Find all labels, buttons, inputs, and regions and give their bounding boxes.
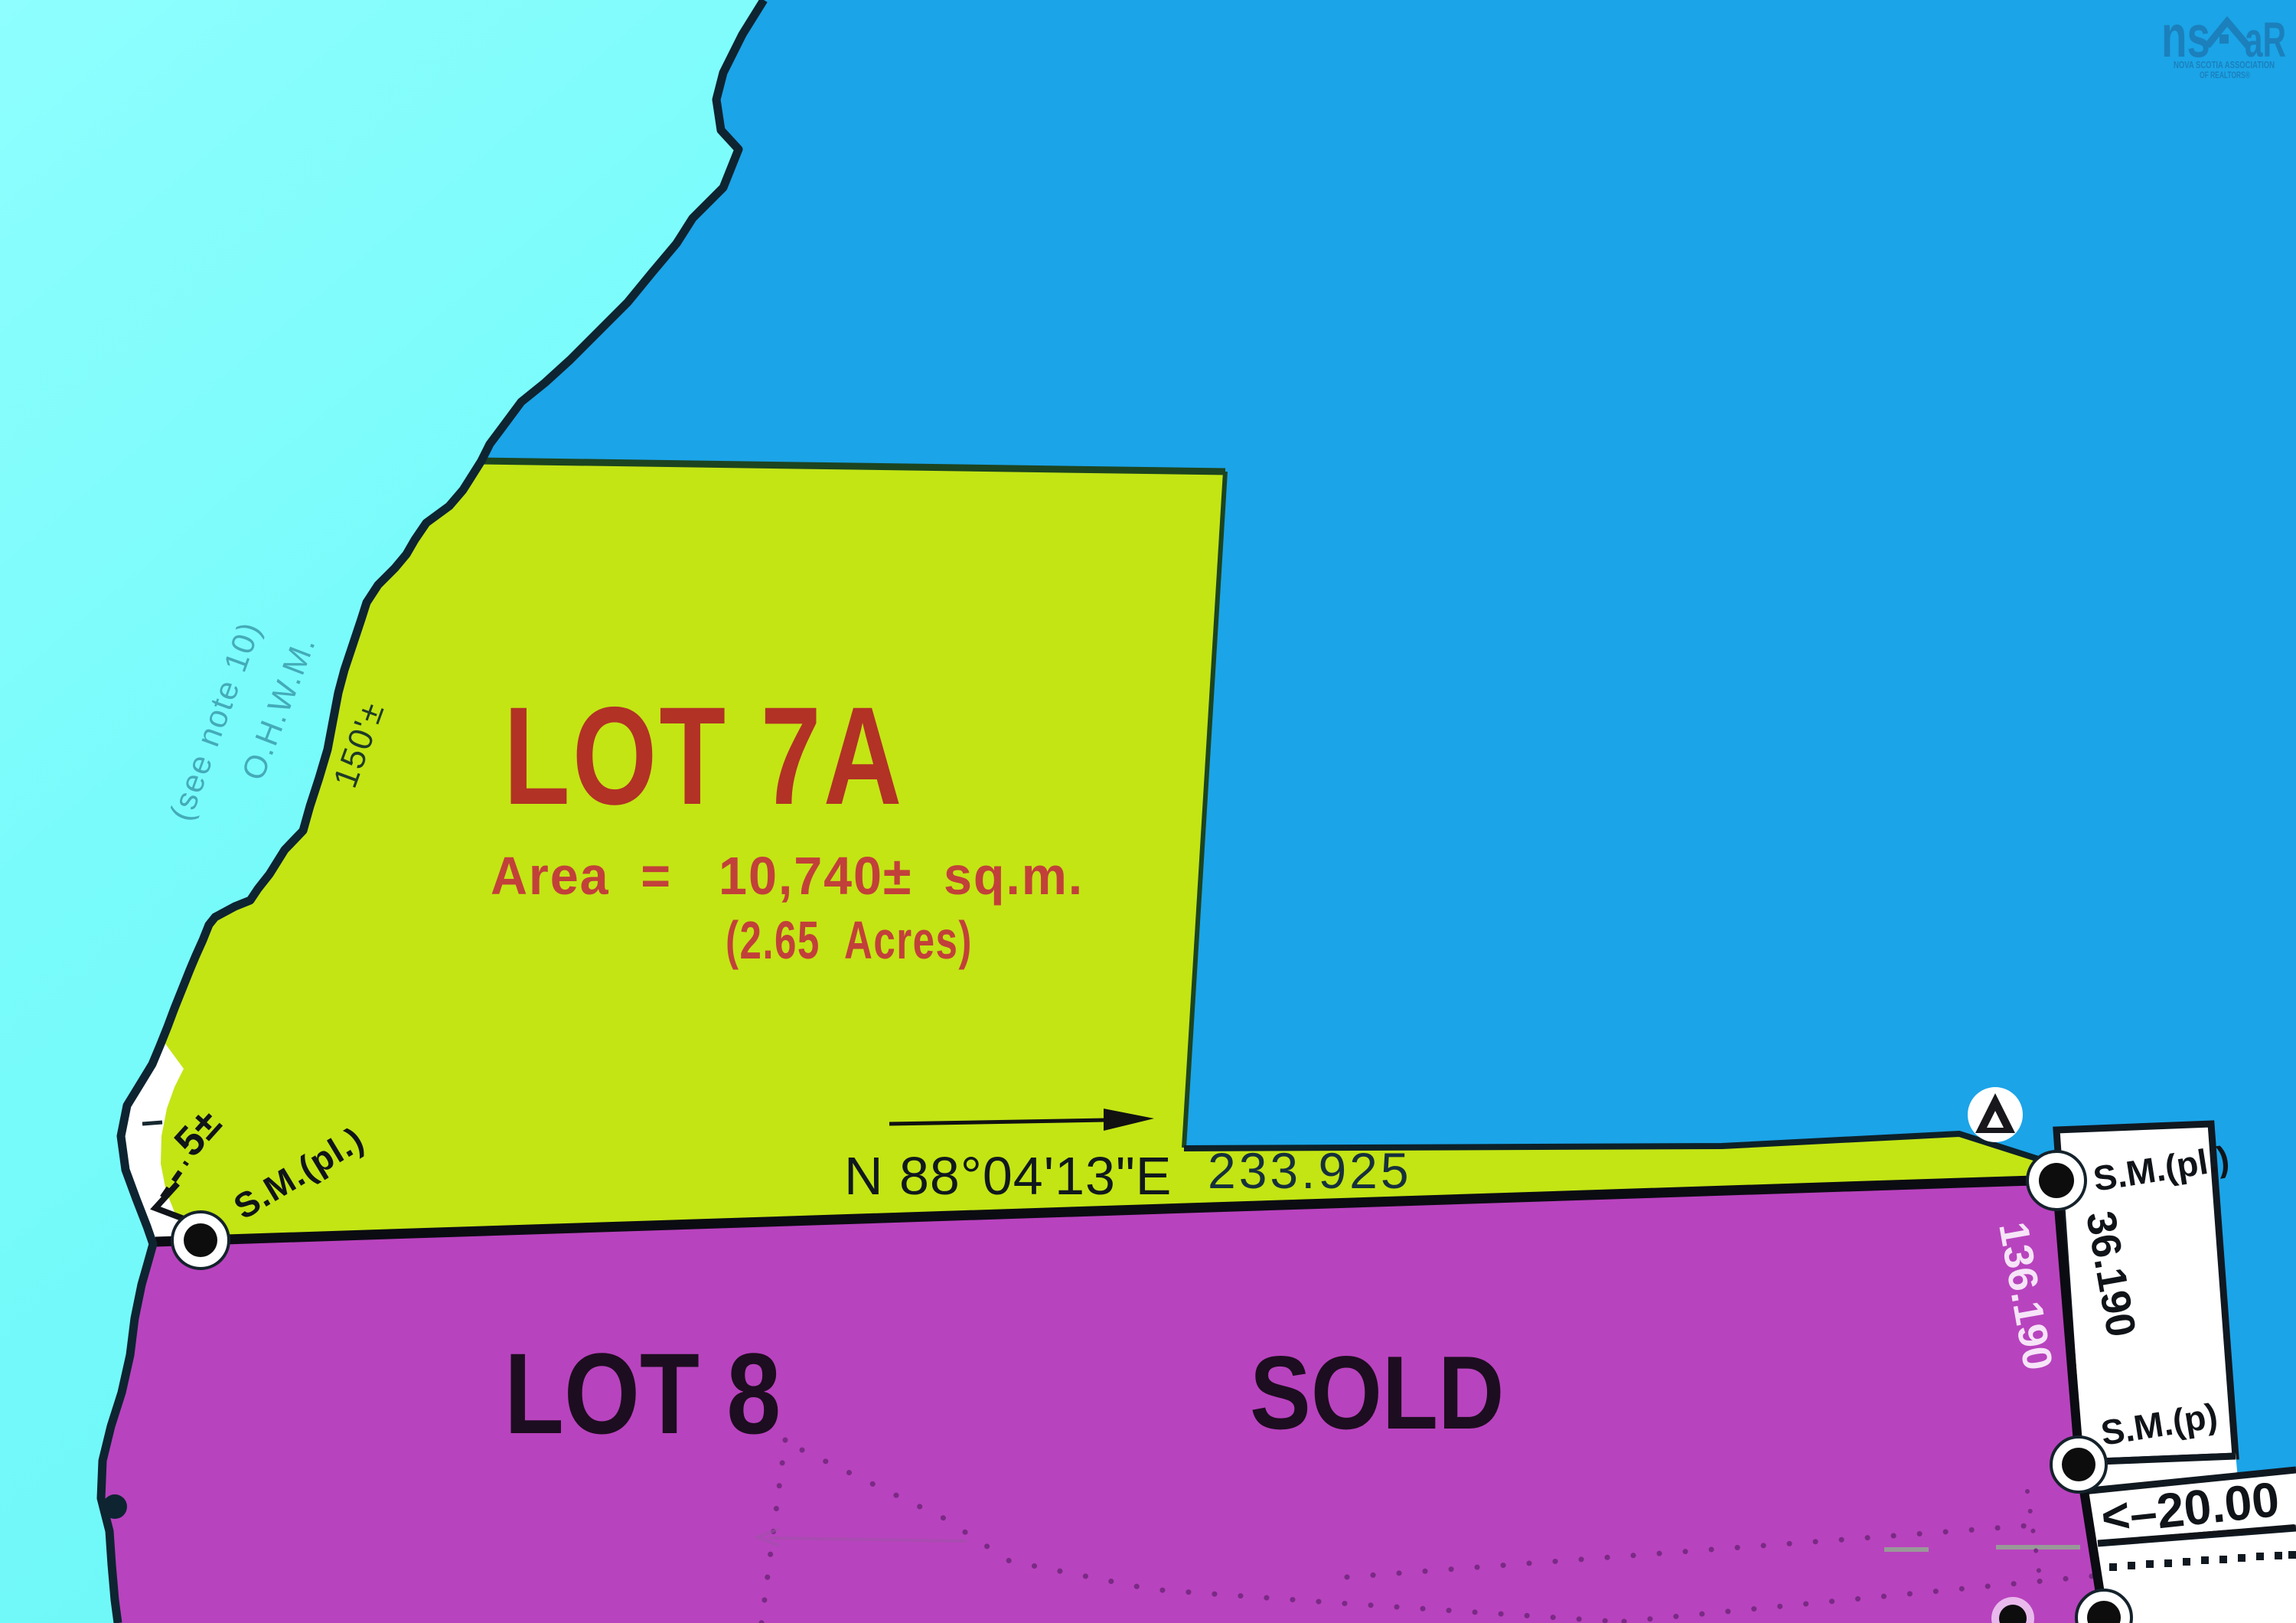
svg-text:LOT 8: LOT 8 xyxy=(504,1330,781,1458)
svg-text:OF REALTORS®: OF REALTORS® xyxy=(2200,70,2250,80)
svg-text:233.925: 233.925 xyxy=(1208,1142,1412,1199)
svg-text:Area = 10,740± sq.m.: Area = 10,740± sq.m. xyxy=(491,846,1084,906)
svg-text:LOT 7A: LOT 7A xyxy=(504,678,904,834)
svg-text:NOVA SCOTIA ASSOCIATION: NOVA SCOTIA ASSOCIATION xyxy=(2174,60,2275,70)
svg-text:N 88°04'13"E: N 88°04'13"E xyxy=(844,1146,1172,1206)
svg-text:SOLD: SOLD xyxy=(1250,1335,1504,1452)
svg-text:(2.65 Acres): (2.65 Acres) xyxy=(726,910,973,970)
